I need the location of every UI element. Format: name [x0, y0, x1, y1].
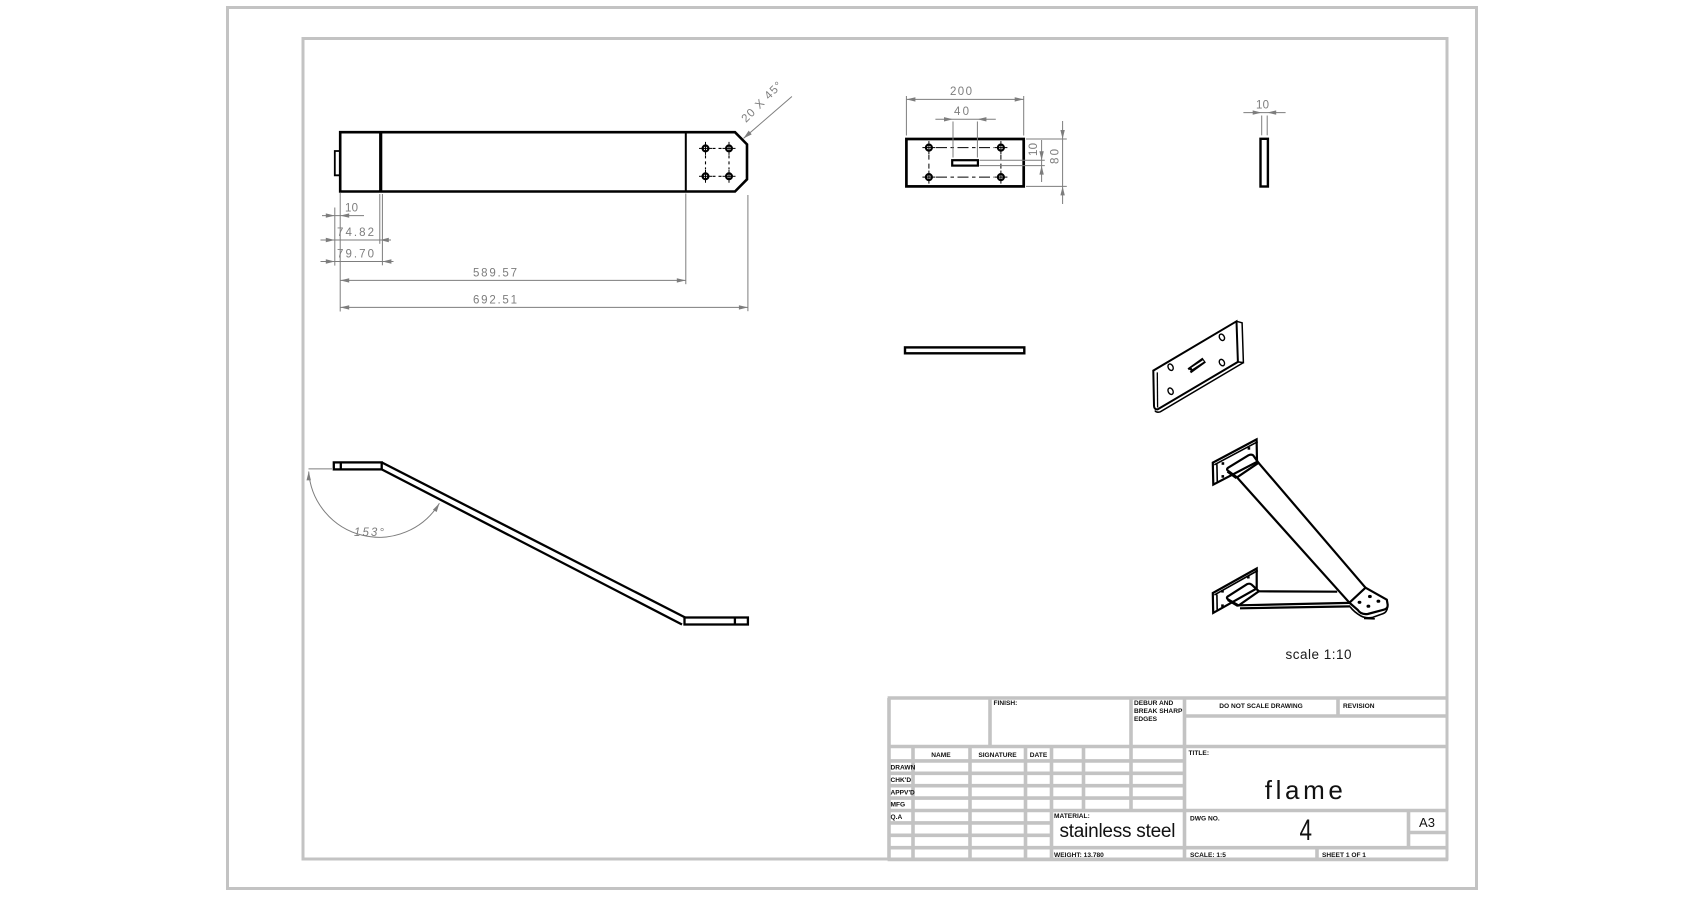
svg-text:Q.A: Q.A — [891, 814, 903, 821]
svg-text:DO NOT SCALE DRAWING: DO NOT SCALE DRAWING — [1219, 703, 1303, 710]
svg-text:BREAK SHARP: BREAK SHARP — [1134, 708, 1183, 715]
svg-text:APPV'D: APPV'D — [891, 789, 916, 796]
svg-text:200: 200 — [950, 86, 972, 98]
svg-text:SCALE: 1:5: SCALE: 1:5 — [1190, 852, 1226, 859]
svg-text:4: 4 — [1299, 813, 1312, 847]
svg-text:EDGES: EDGES — [1134, 716, 1158, 723]
svg-text:DEBUR AND: DEBUR AND — [1134, 700, 1174, 707]
svg-text:DWG NO.: DWG NO. — [1190, 816, 1220, 823]
svg-text:DRAWN: DRAWN — [891, 765, 916, 772]
svg-text:79.70: 79.70 — [337, 249, 374, 261]
svg-text:scale 1:10: scale 1:10 — [1286, 647, 1352, 662]
svg-text:flame: flame — [1265, 775, 1343, 805]
svg-text:NAME: NAME — [931, 752, 951, 759]
svg-text:CHK'D: CHK'D — [891, 777, 912, 784]
svg-text:WEIGHT: 13.780: WEIGHT: 13.780 — [1054, 852, 1104, 859]
svg-text:REVISION: REVISION — [1343, 703, 1375, 710]
svg-text:FINISH:: FINISH: — [994, 700, 1018, 707]
svg-text:SHEET 1 OF 1: SHEET 1 OF 1 — [1322, 852, 1366, 859]
svg-text:MATERIAL:: MATERIAL: — [1054, 813, 1090, 820]
svg-text:A3: A3 — [1419, 815, 1435, 830]
svg-text:10: 10 — [345, 203, 358, 215]
svg-text:74.82: 74.82 — [337, 227, 374, 239]
svg-text:10: 10 — [1256, 99, 1269, 111]
svg-text:10: 10 — [1028, 143, 1040, 156]
svg-text:DATE: DATE — [1030, 752, 1048, 759]
svg-text:TITLE:: TITLE: — [1189, 750, 1210, 757]
svg-text:stainless steel: stainless steel — [1060, 821, 1176, 842]
svg-text:MFG: MFG — [891, 802, 906, 809]
svg-text:SIGNATURE: SIGNATURE — [978, 752, 1017, 759]
